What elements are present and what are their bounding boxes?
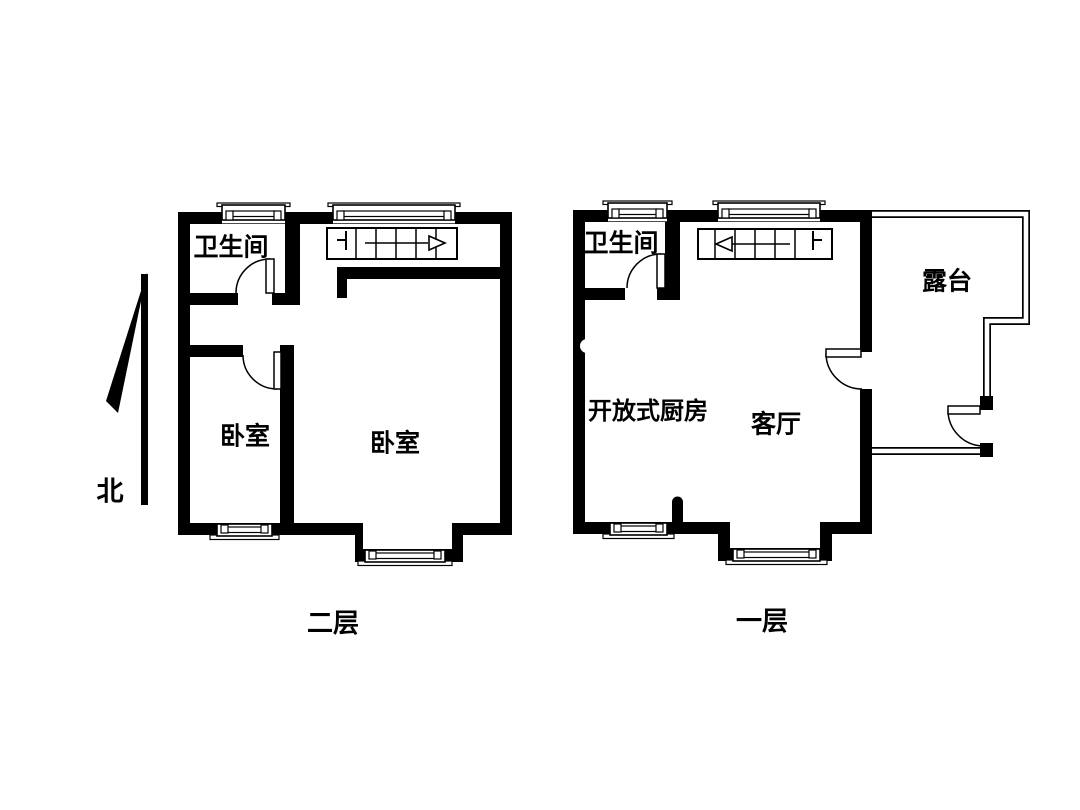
window-glazing (227, 527, 262, 533)
window-cap (656, 524, 663, 532)
window-cap (261, 525, 268, 533)
kitchen-partition-stub (672, 497, 683, 535)
bathroom-door-leaf (657, 254, 665, 288)
window-glazing (375, 553, 435, 559)
window-bathroom-top (217, 203, 290, 223)
window-bedroom-small-bottom (210, 524, 279, 540)
window-cap (809, 209, 816, 218)
window-cap (722, 209, 729, 218)
window-glazing (620, 526, 657, 532)
bedroom-large-top-wall (337, 267, 512, 279)
floorplan-svg (0, 0, 1080, 810)
terrace-parapet-inner (872, 214, 1026, 398)
window-cap (444, 211, 451, 220)
outer-right-wall-lower (860, 389, 872, 534)
window-glazing (232, 211, 275, 217)
bedroom-small-door (243, 352, 281, 389)
bathroom-bottom-wall (585, 288, 625, 300)
stairs (327, 228, 457, 259)
terrace-door-leaf (948, 406, 980, 414)
bathroom-bottom-wall (190, 293, 238, 305)
terrace-door-leaf (826, 349, 861, 357)
bathroom-door-leaf (266, 259, 274, 293)
bathroom-door-swing-arc (627, 254, 661, 288)
bedroom-small-door-swing-arc (243, 355, 277, 389)
north-arrow-shaft (141, 274, 148, 505)
window-stairs-top (328, 203, 460, 223)
terrace-door (826, 349, 862, 389)
outer-right-wall-upper (860, 210, 872, 352)
bathroom-door (236, 259, 274, 293)
outer-left-wall (178, 212, 190, 535)
outer-left-wall (573, 210, 585, 534)
terrace-door-swing-arc (826, 353, 862, 389)
window-glazing (618, 209, 657, 215)
north-arrow-wedge (106, 272, 147, 413)
window-glazing (343, 211, 445, 217)
window-bay-bottom (726, 549, 827, 565)
north-arrow (106, 272, 148, 505)
window-bathroom-top (603, 201, 672, 221)
bathroom-right-wall (285, 224, 300, 305)
second-floor-plan (178, 203, 512, 566)
window-bay-bottom (358, 550, 452, 566)
window-glazing (728, 209, 810, 215)
first-floor-plan (573, 201, 1026, 565)
bathroom-door-swing-arc (236, 259, 270, 293)
floorplan-image: 北二层卫生间卧室卧室一层卫生间开放式厨房客厅露台 (0, 0, 1080, 810)
terrace-parapet-outer (872, 214, 1026, 398)
bedroom-small-top-wall (190, 345, 243, 357)
bathroom-hinge-stub (272, 293, 300, 305)
terrace-door-jamb (980, 443, 993, 457)
stairs (698, 229, 832, 259)
window-cap (656, 209, 663, 218)
window-cap (221, 525, 228, 533)
terrace-door-swing-arc (948, 410, 982, 446)
bathroom-hinge-stub (657, 288, 680, 300)
terrace-door-jamb (980, 396, 993, 410)
window-cap (809, 550, 816, 558)
bathroom-door (627, 254, 665, 288)
window-stairs-top (713, 201, 825, 221)
bedroom-small-door-leaf (274, 352, 281, 389)
window-cap (614, 524, 621, 532)
window-cap (226, 211, 233, 220)
outer-bottom-wall-right (452, 523, 512, 535)
window-cap (274, 211, 281, 220)
window-cap (612, 209, 619, 218)
window-kitchen-bottom (603, 523, 674, 539)
window-cap (337, 211, 344, 220)
bedroom-divider-wall (280, 345, 294, 523)
outer-bottom-wall-right (820, 522, 872, 534)
window-glazing (743, 552, 810, 558)
outer-right-wall (500, 212, 512, 535)
window-cap (434, 551, 441, 559)
wall-notch (580, 339, 594, 353)
window-cap (369, 551, 376, 559)
stair-side-stub (337, 267, 347, 298)
terrace-outline (872, 214, 1026, 457)
window-cap (737, 550, 744, 558)
